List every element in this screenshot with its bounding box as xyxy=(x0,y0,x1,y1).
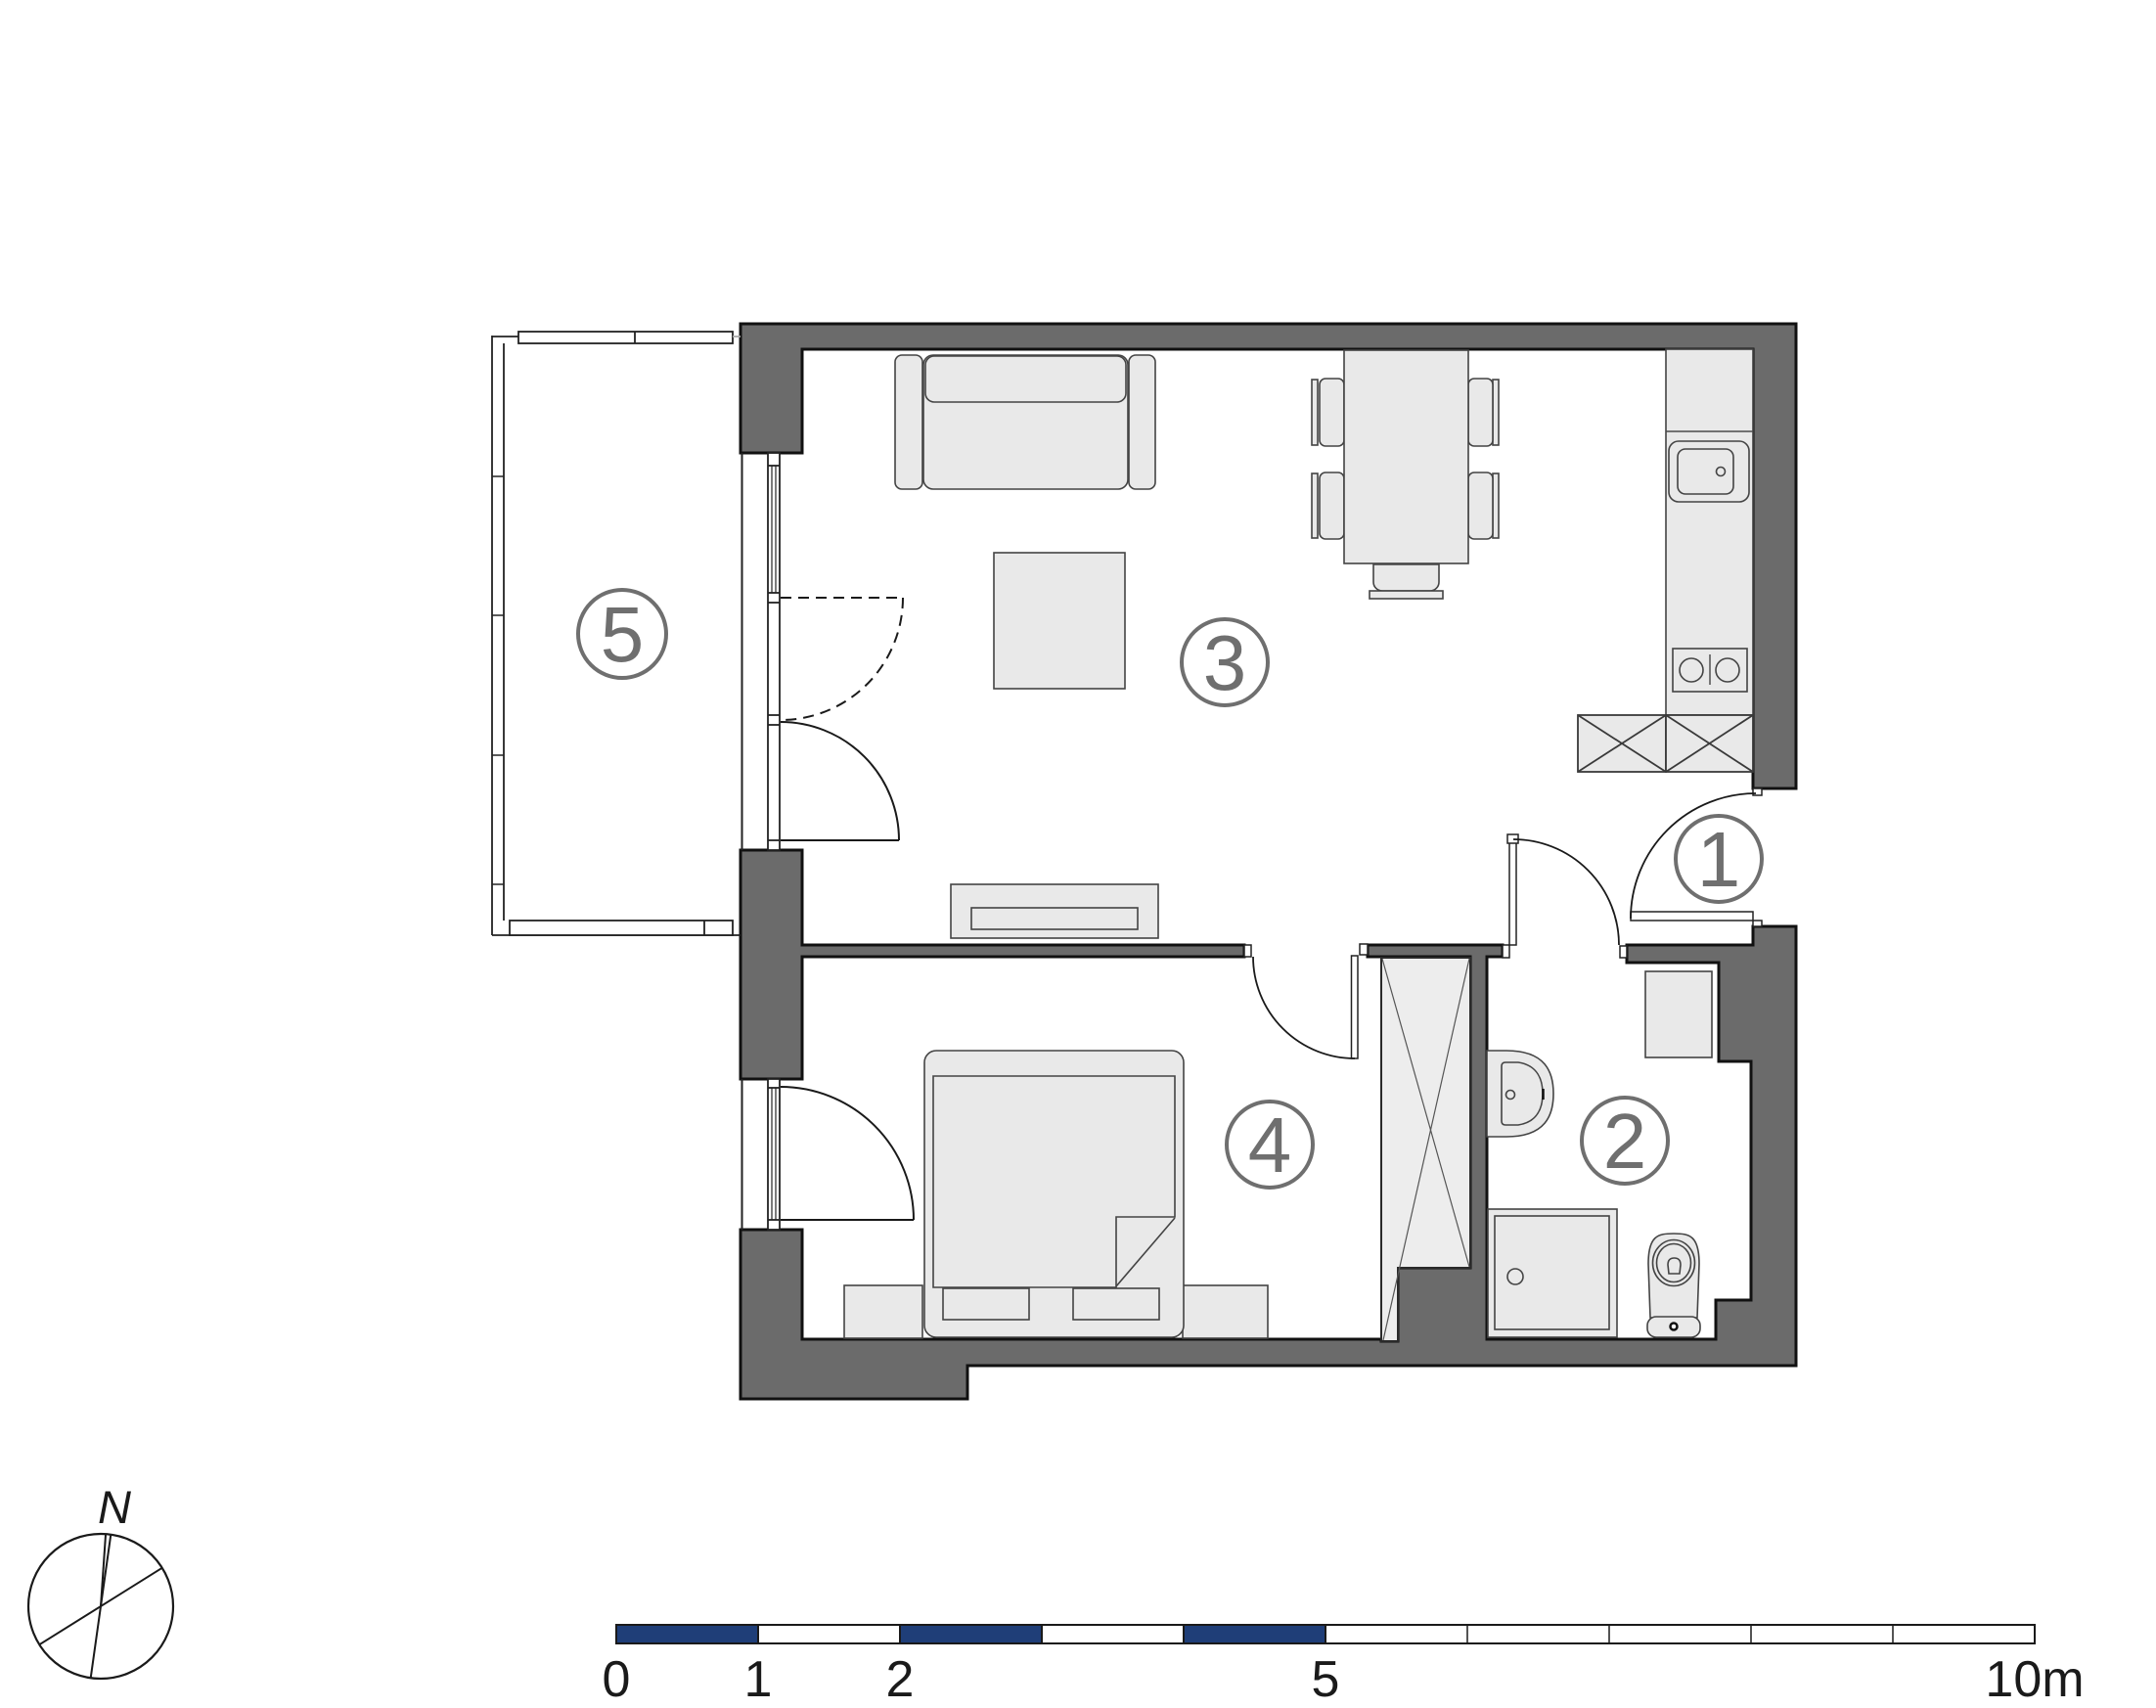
svg-text:2: 2 xyxy=(886,1651,915,1708)
svg-text:N: N xyxy=(98,1481,131,1533)
svg-text:0: 0 xyxy=(603,1651,631,1708)
svg-text:2: 2 xyxy=(1603,1098,1647,1185)
svg-text:1: 1 xyxy=(1697,816,1741,903)
svg-text:1: 1 xyxy=(744,1651,773,1708)
svg-text:4: 4 xyxy=(1248,1101,1292,1189)
svg-text:3: 3 xyxy=(1203,619,1247,706)
svg-text:10m: 10m xyxy=(1985,1651,2084,1708)
svg-text:5: 5 xyxy=(601,591,645,678)
svg-text:5: 5 xyxy=(1312,1651,1340,1708)
